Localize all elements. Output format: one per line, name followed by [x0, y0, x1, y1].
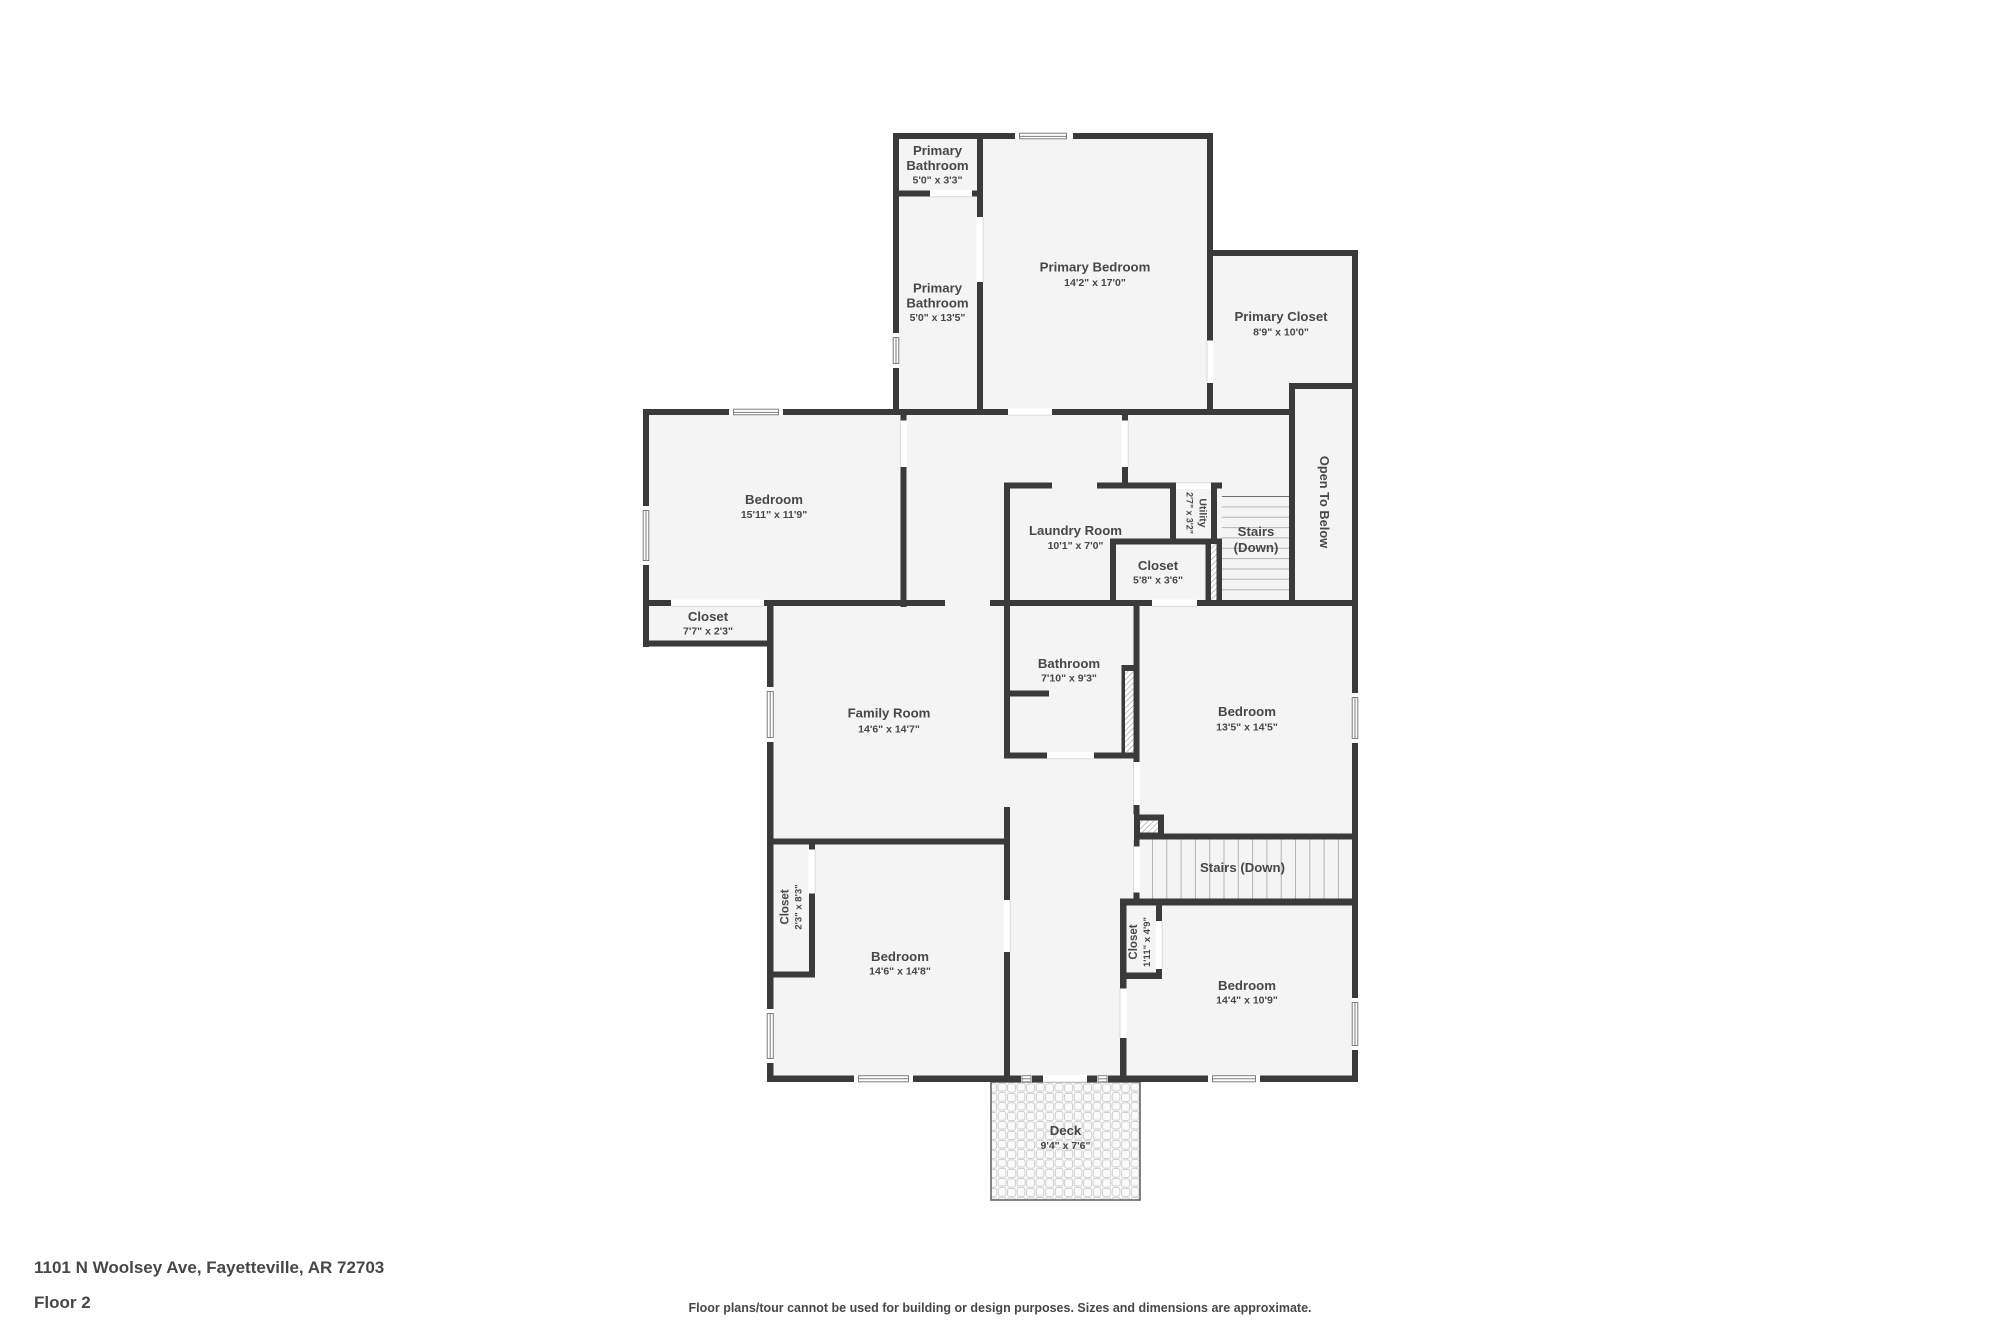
svg-text:2'7" x 3'2": 2'7" x 3'2" — [1185, 492, 1195, 534]
svg-text:Bathroom: Bathroom — [906, 158, 968, 173]
svg-text:Stairs: Stairs — [1238, 524, 1275, 539]
svg-text:9'4" x 7'6": 9'4" x 7'6" — [1041, 1140, 1091, 1152]
svg-text:Closet: Closet — [688, 609, 729, 624]
svg-text:7'7" x 2'3": 7'7" x 2'3" — [683, 626, 733, 638]
svg-text:5'8" x 3'6": 5'8" x 3'6" — [1133, 575, 1183, 587]
svg-text:Bedroom: Bedroom — [745, 492, 803, 507]
svg-text:Family Room: Family Room — [848, 706, 931, 721]
svg-text:2'3" x 8'3": 2'3" x 8'3" — [794, 884, 805, 929]
svg-text:Primary Bedroom: Primary Bedroom — [1040, 260, 1151, 275]
svg-text:8'9" x 10'0": 8'9" x 10'0" — [1253, 327, 1309, 339]
svg-text:Floor plans/tour cannot be use: Floor plans/tour cannot be used for buil… — [688, 1301, 1311, 1315]
svg-text:Floor 2: Floor 2 — [34, 1293, 91, 1312]
svg-text:Closet: Closet — [1138, 558, 1179, 573]
svg-text:Closet: Closet — [1128, 924, 1140, 959]
svg-text:Primary: Primary — [913, 143, 963, 158]
svg-text:14'6" x 14'7": 14'6" x 14'7" — [858, 724, 920, 736]
svg-text:Closet: Closet — [780, 889, 792, 924]
svg-text:(Down): (Down) — [1234, 540, 1279, 555]
svg-text:Bedroom: Bedroom — [1218, 704, 1276, 719]
svg-text:Bathroom: Bathroom — [1038, 656, 1100, 671]
svg-text:10'1" x 7'0": 10'1" x 7'0" — [1048, 540, 1104, 552]
svg-text:Primary Closet: Primary Closet — [1234, 309, 1328, 324]
svg-text:Laundry Room: Laundry Room — [1029, 523, 1122, 538]
svg-text:Utility: Utility — [1197, 498, 1209, 527]
svg-text:14'2" x 17'0": 14'2" x 17'0" — [1064, 277, 1126, 289]
svg-text:Primary: Primary — [913, 281, 963, 296]
svg-text:14'4" x 10'9": 14'4" x 10'9" — [1216, 995, 1278, 1007]
svg-text:Open To Below: Open To Below — [1317, 456, 1332, 548]
svg-text:13'5" x 14'5": 13'5" x 14'5" — [1216, 722, 1278, 734]
svg-text:Bedroom: Bedroom — [871, 949, 929, 964]
svg-text:1'11" x 4'9": 1'11" x 4'9" — [1142, 917, 1153, 967]
svg-text:15'11" x 11'9": 15'11" x 11'9" — [741, 509, 807, 521]
svg-text:1101 N Woolsey Ave, Fayettevil: 1101 N Woolsey Ave, Fayetteville, AR 727… — [34, 1258, 384, 1277]
svg-text:Stairs (Down): Stairs (Down) — [1200, 860, 1285, 875]
svg-text:7'10" x 9'3": 7'10" x 9'3" — [1041, 673, 1097, 685]
svg-text:Deck: Deck — [1050, 1123, 1082, 1138]
svg-text:14'6" x 14'8": 14'6" x 14'8" — [869, 966, 931, 978]
svg-text:5'0" x 3'3": 5'0" x 3'3" — [913, 175, 963, 187]
svg-text:Bathroom: Bathroom — [906, 296, 968, 311]
svg-text:5'0" x 13'5": 5'0" x 13'5" — [910, 312, 966, 324]
svg-text:Bedroom: Bedroom — [1218, 978, 1276, 993]
